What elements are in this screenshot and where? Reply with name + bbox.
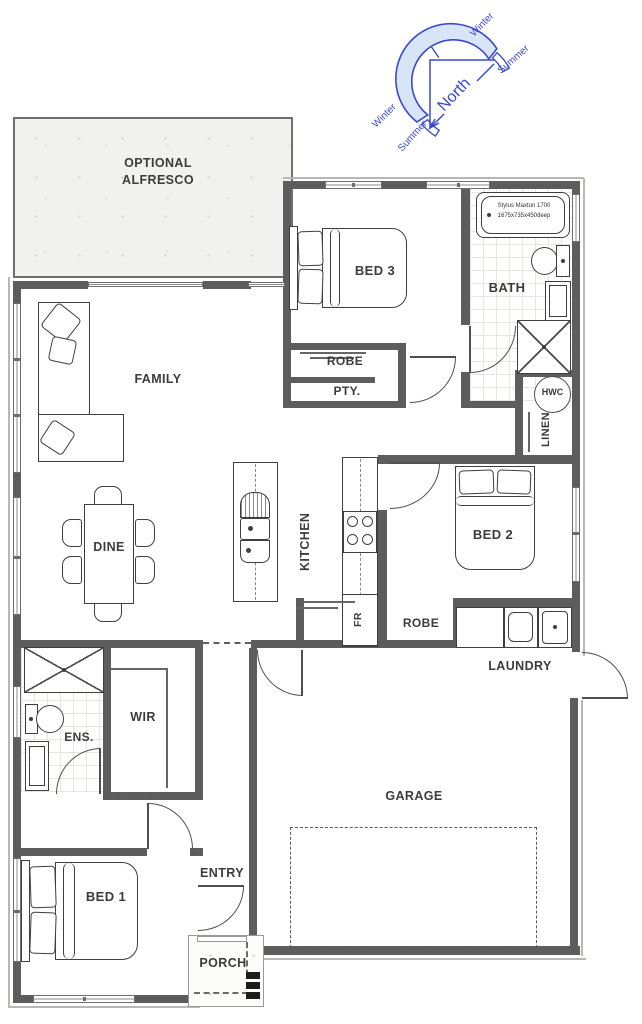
sink-bowl <box>240 518 270 540</box>
bed1-fold <box>63 863 75 959</box>
garage-car-space <box>290 827 537 948</box>
summer-lower-label: Summer <box>396 118 430 154</box>
ensuite-toilet-button <box>29 717 33 721</box>
laundry-external-door-leaf <box>582 697 628 699</box>
wall <box>296 598 304 648</box>
dine-label: DINE <box>86 540 132 554</box>
alfresco-label-line1: OPTIONAL <box>88 156 228 170</box>
porch-label: PORCH <box>192 956 254 970</box>
ensuite-shower-drain <box>62 668 66 672</box>
wall <box>283 401 406 408</box>
wall <box>581 700 583 956</box>
cooktop-burner <box>347 516 358 527</box>
bed1-pillow <box>29 912 56 955</box>
wall <box>461 401 522 408</box>
laundry-bench-divider <box>503 608 505 647</box>
wall <box>203 281 251 289</box>
ensuite-vanity-basin <box>29 746 45 786</box>
wall <box>13 848 147 856</box>
bath-vanity-basin <box>549 285 567 317</box>
winter-lower-label: Winter <box>370 101 399 130</box>
bed3-door <box>410 357 456 403</box>
window-mullion <box>14 910 20 913</box>
dining-chair <box>62 519 82 547</box>
window <box>13 686 21 738</box>
hwc-label: HWC <box>534 387 571 397</box>
wall <box>8 1006 200 1008</box>
sink-drain <box>248 526 253 531</box>
wall <box>283 177 584 179</box>
robe-bed3-label: ROBE <box>314 354 376 368</box>
garage-internal-door-leaf <box>301 650 303 696</box>
alfresco-label-line2: ALFRESCO <box>88 173 228 187</box>
robe-bed2-label: ROBE <box>392 616 450 630</box>
window-mullion <box>14 556 20 559</box>
bath-toilet-button <box>561 259 565 263</box>
cooktop-burner <box>362 534 373 545</box>
sink-drain <box>246 548 251 553</box>
bed2-door <box>390 463 440 509</box>
window-mullion <box>352 183 355 187</box>
wir-dashed-line <box>110 794 158 796</box>
kitchen-label: KITCHEN <box>298 503 316 581</box>
compass-band-divider <box>432 47 439 58</box>
bath-shower-drain <box>542 345 546 349</box>
wall <box>13 281 88 289</box>
wall <box>250 958 586 960</box>
bed3-pillow <box>297 269 323 305</box>
floor-plan: OPTIONAL ALFRESCO <box>0 0 642 1024</box>
bed2-fold <box>456 496 534 506</box>
north-label: North <box>435 75 474 115</box>
family-label: FAMILY <box>120 372 196 386</box>
bed2-pillow <box>459 469 495 494</box>
bathtub-model: Stylus Maxton 1700 <box>484 202 564 212</box>
laundry-label: LAUNDRY <box>482 659 558 673</box>
sliding-door <box>88 282 203 287</box>
window-mullion <box>14 414 20 417</box>
linen-label: LINEN <box>540 404 556 456</box>
window-mullion <box>83 997 86 1001</box>
entry-threshold <box>197 936 247 942</box>
window-mullion <box>14 358 20 361</box>
dining-chair <box>62 556 82 584</box>
entry-door <box>198 886 244 931</box>
laundry-external-door <box>582 652 628 699</box>
bath-toilet-bowl <box>531 247 558 275</box>
wall <box>8 277 10 1007</box>
dining-table <box>84 504 134 604</box>
garage-label: GARAGE <box>380 789 448 803</box>
compass: North Winter Summer Winter Summer <box>384 4 566 154</box>
wall <box>583 178 585 656</box>
wall <box>461 372 470 408</box>
alfresco-area <box>13 117 293 278</box>
sink-bowl <box>240 540 270 563</box>
bulkhead-dashed-line <box>203 642 251 644</box>
sofa-pillow <box>48 336 78 366</box>
bathtub-label: Stylus Maxton 1700 1675x735x450deep <box>484 202 564 221</box>
ensuite-door-leaf <box>99 748 101 794</box>
cooktop-burner <box>362 516 373 527</box>
entry-label: ENTRY <box>194 866 250 880</box>
wall <box>195 640 203 800</box>
ensuite-toilet-bowl <box>36 705 64 733</box>
robe-rail <box>303 601 355 603</box>
wir-label: WIR <box>122 710 164 724</box>
bathtub-drain <box>487 213 491 217</box>
bed3-fold <box>330 229 340 307</box>
wall <box>515 377 523 455</box>
sliding-door <box>248 282 285 287</box>
bed2-label: BED 2 <box>458 527 528 542</box>
garage-internal-door <box>257 650 303 696</box>
window <box>13 303 21 473</box>
window-mullion <box>573 532 579 535</box>
sink-hood <box>240 492 270 518</box>
pantry-label: PTY. <box>322 384 372 398</box>
linen-shelf <box>528 412 530 452</box>
bath-label: BATH <box>478 280 536 295</box>
bath-door-leaf <box>469 326 471 373</box>
bed1-pillow <box>29 866 56 909</box>
wall <box>453 598 580 607</box>
dining-chair <box>135 519 155 547</box>
alfresco-label: OPTIONAL ALFRESCO <box>88 156 228 187</box>
dining-chair <box>94 602 122 622</box>
bathtub-dimensions: 1675x735x450deep <box>484 212 564 222</box>
bed1-door-leaf <box>147 803 149 849</box>
wall <box>461 188 470 325</box>
washing-machine <box>508 612 533 642</box>
bed2-pillow <box>497 469 532 494</box>
bed3-label: BED 3 <box>340 263 410 278</box>
wir-shelf <box>111 668 168 670</box>
wall <box>283 343 406 350</box>
wir-shelf <box>166 668 168 788</box>
dining-chair <box>94 486 122 506</box>
ensuite-label: ENS. <box>56 730 102 744</box>
bed2-door-leaf <box>390 462 440 464</box>
wall <box>378 510 387 648</box>
wall <box>570 698 578 953</box>
wall <box>249 648 257 954</box>
wall <box>190 848 203 856</box>
wall <box>398 343 406 408</box>
wall <box>103 640 111 800</box>
dining-chair <box>135 556 155 584</box>
laundry-sink-drain <box>553 625 557 629</box>
bed1-door <box>148 803 193 849</box>
robe-rail <box>296 607 338 609</box>
cooktop-burner <box>347 534 358 545</box>
window <box>572 194 580 242</box>
window-mullion <box>457 183 460 187</box>
bed3-pillow <box>297 231 323 267</box>
wall <box>283 377 375 383</box>
fridge-label: FR <box>352 600 368 640</box>
bed1-label: BED 1 <box>76 889 136 904</box>
entry-door-leaf <box>198 885 244 887</box>
bed3-door-leaf <box>410 356 456 358</box>
laundry-bench-divider <box>537 608 539 647</box>
porch-pillar <box>246 972 260 1000</box>
